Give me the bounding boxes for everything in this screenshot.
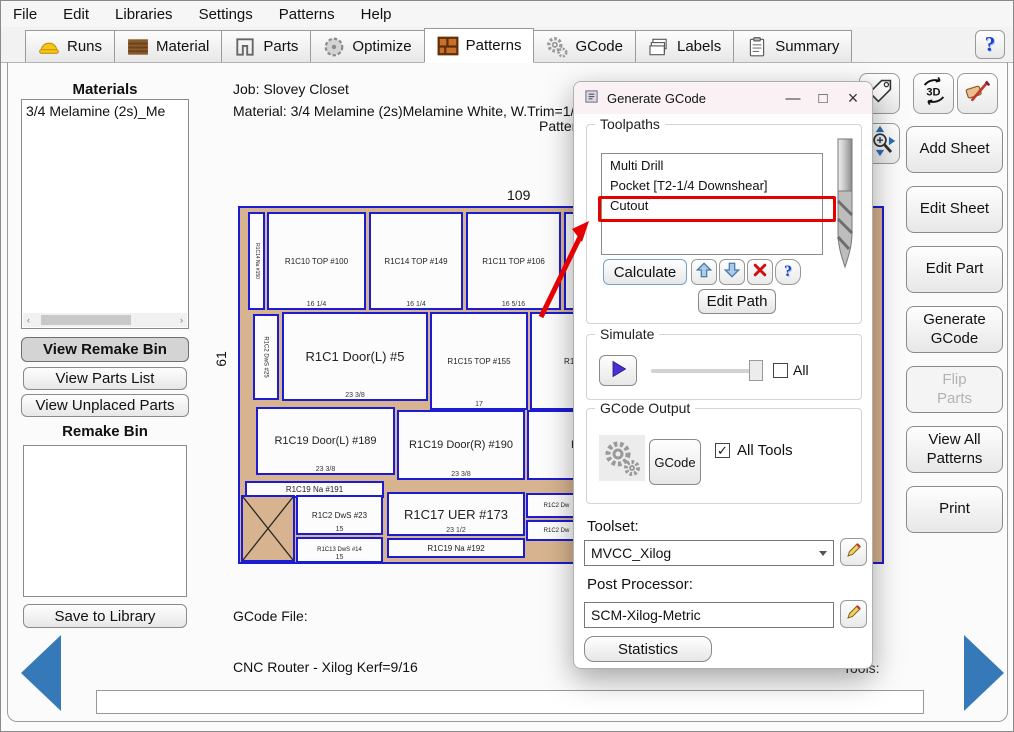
gcode-file-label: GCode File: (233, 608, 308, 624)
dialog-icon (584, 89, 599, 107)
gears-icon (546, 36, 568, 58)
job-line: Job: Slovey Closet (233, 81, 349, 97)
part-dimension: 16 1/4 (371, 301, 461, 308)
post-processor-label: Post Processor: (587, 576, 693, 593)
sawblade-icon (323, 36, 345, 58)
toolpaths-group: Toolpaths Multi DrillPocket [T2-1/4 Down… (586, 124, 862, 324)
labels-icon (648, 36, 670, 58)
red-x-icon (752, 262, 768, 283)
pattern-part[interactable]: R1C14 TOP #14916 1/4 (369, 212, 463, 310)
simulation-slider-handle[interactable] (749, 360, 763, 381)
material-line: Material: 3/4 Melamine (2s)Melamine Whit… (233, 103, 586, 119)
menu-item-edit[interactable]: Edit (63, 6, 89, 23)
pattern-part[interactable]: R1C19 Na #192 (387, 538, 525, 558)
toolpath-item[interactable]: Multi Drill (602, 156, 822, 176)
pattern-part[interactable]: R1C19 Door(L) #18923 3/8 (256, 407, 395, 475)
menu-item-file[interactable]: File (13, 6, 37, 23)
tab-label: Runs (67, 38, 102, 55)
pattern-part[interactable]: R1C14 Na #150 (248, 212, 265, 310)
dialog-titlebar[interactable]: Generate GCode — □ × (574, 82, 872, 114)
part-dimension: 16 1/4 (269, 301, 364, 308)
toolpaths-heading: Toolpaths (595, 116, 665, 132)
gcode-output-group: GCode Output GCode ✓ All Tools (586, 408, 862, 504)
tab-labels[interactable]: Labels (635, 30, 734, 62)
add-sheet-button[interactable]: Add Sheet (906, 126, 1003, 173)
sheet-width-dimension: 109 (507, 187, 530, 203)
all-tools-checkbox[interactable]: ✓ (715, 443, 730, 458)
pattern-part[interactable]: R1C2 DwS #25 (253, 314, 279, 400)
main-content: Materials 3/4 Melamine (2s)_Me ‹ › View … (1, 63, 1014, 732)
clipboard-icon (746, 36, 768, 58)
pencil-icon (845, 541, 863, 564)
move-down-button[interactable] (719, 259, 745, 285)
play-simulation-button[interactable] (599, 355, 637, 386)
materials-heading: Materials (21, 81, 189, 98)
part-label: R1C19 Door(L) #189 (274, 435, 376, 447)
generate-gcode-dialog: Generate GCode — □ × Toolpaths Multi Dri… (573, 81, 873, 669)
pattern-part[interactable]: R1C11 TOP #10616 5/16 (466, 212, 561, 310)
close-button[interactable]: × (838, 85, 868, 111)
edit-pattern-button[interactable] (957, 73, 998, 114)
tab-runs[interactable]: Runs (25, 30, 115, 62)
gears-icon (599, 435, 645, 481)
tab-label: Optimize (352, 38, 411, 55)
menu-item-patterns[interactable]: Patterns (279, 6, 335, 23)
tab-label: Summary (775, 38, 839, 55)
gcode-output-heading: GCode Output (595, 400, 695, 416)
simulate-heading: Simulate (595, 326, 659, 342)
part-label: R1C15 TOP #155 (447, 357, 510, 366)
gcode-button[interactable]: GCode (649, 439, 701, 485)
delete-toolpath-button[interactable] (747, 259, 773, 285)
simulation-slider-track[interactable] (651, 369, 763, 373)
materials-list[interactable]: 3/4 Melamine (2s)_Me ‹ › (21, 99, 189, 329)
app-window: FileEditLibrariesSettingsPatternsHelp Ru… (0, 0, 1014, 732)
tab-label: Labels (677, 38, 721, 55)
sheet-height-dimension: 61 (213, 351, 229, 367)
tab-label: Material (156, 38, 209, 55)
scroll-right-icon[interactable]: › (180, 315, 183, 325)
waste-area[interactable] (241, 495, 295, 562)
pattern-part[interactable]: R1C19 Door(R) #19023 3/8 (397, 410, 525, 480)
tab-patterns[interactable]: Patterns (424, 28, 535, 63)
part-label: R1C17 UER #173 (404, 507, 508, 522)
part-dimension: 15 (298, 554, 381, 561)
pattern-part[interactable]: R1C15 TOP #15517 (430, 312, 528, 410)
view-unplaced-parts-button[interactable]: View Unplaced Parts (21, 394, 189, 417)
svg-text:3D: 3D (926, 86, 940, 98)
previous-pattern-arrow[interactable] (21, 635, 61, 711)
maximize-button[interactable]: □ (808, 85, 838, 111)
tab-gcode[interactable]: GCode (533, 30, 636, 62)
print-button[interactable]: Print (906, 486, 1003, 533)
up-arrow-icon (695, 261, 713, 284)
part-dimension: 17 (432, 401, 526, 408)
menu-item-settings[interactable]: Settings (199, 6, 253, 23)
menu-item-libraries[interactable]: Libraries (115, 6, 173, 23)
next-pattern-arrow[interactable] (964, 635, 1004, 711)
tab-bar: RunsMaterialPartsOptimizePatternsGCodeLa… (1, 27, 1013, 63)
move-up-button[interactable] (691, 259, 717, 285)
part-label: R1C19 Na #192 (427, 544, 484, 553)
view-parts-list-button[interactable]: View Parts List (23, 367, 187, 390)
edit-path-button[interactable]: Edit Path (698, 289, 776, 314)
simulate-all-checkbox[interactable] (773, 363, 788, 378)
flip-parts-button: Flip Parts (906, 366, 1003, 413)
scroll-left-icon[interactable]: ‹ (27, 315, 30, 325)
part-dimension: 23 1/2 (389, 527, 523, 534)
parts-icon (234, 36, 256, 58)
toolpath-item[interactable]: Pocket [T2-1/4 Downshear] (602, 176, 822, 196)
part-dimension: 15 (298, 526, 381, 533)
hardhat-icon (38, 36, 60, 58)
minimize-button[interactable]: — (778, 85, 808, 111)
post-processor-value: SCM-Xilog-Metric (591, 607, 701, 623)
pencil-icon (845, 603, 863, 626)
toolpath-help-button[interactable]: ? (775, 259, 801, 285)
chevron-down-icon (819, 551, 827, 556)
pattern-part[interactable]: R1C17 UER #17323 1/2 (387, 492, 525, 536)
gcode-file-field[interactable] (96, 690, 924, 714)
edit-sheet-button[interactable]: Edit Sheet (906, 186, 1003, 233)
statistics-button[interactable]: Statistics (584, 636, 712, 662)
all-tools-label: All Tools (737, 442, 793, 459)
menu-item-help[interactable]: Help (361, 6, 392, 23)
part-label: R1C13 DwS #14 (317, 547, 362, 553)
edit-part-button[interactable]: Edit Part (906, 246, 1003, 293)
tab-label: Parts (263, 38, 298, 55)
pattern-part[interactable]: R1C13 DwS #1415 (296, 537, 383, 563)
remake-bin-list[interactable] (23, 445, 187, 597)
tab-optimize[interactable]: Optimize (310, 30, 424, 62)
part-dimension: 23 3/8 (258, 466, 393, 473)
tab-summary[interactable]: Summary (733, 30, 852, 62)
pattern-part[interactable]: R1C2 DwS #2315 (296, 495, 383, 535)
router-line: CNC Router - Xilog Kerf=9/16 (233, 659, 418, 675)
simulate-all-label: All (793, 362, 809, 378)
bricks-icon (437, 35, 459, 57)
part-label: R1C2 Dw (544, 503, 570, 509)
part-dimension: 23 3/8 (284, 392, 426, 399)
view-all-patterns-button[interactable]: View All Patterns (906, 426, 1003, 473)
tab-strip: RunsMaterialPartsOptimizePatternsGCodeLa… (25, 28, 851, 62)
part-label: R1C10 TOP #100 (285, 257, 348, 266)
3d-rotate-icon: 3D (917, 74, 951, 113)
part-label: R1C14 TOP #149 (384, 257, 447, 266)
menu-bar: FileEditLibrariesSettingsPatternsHelp (1, 1, 1013, 27)
view-remake-bin-button[interactable]: View Remake Bin (21, 337, 189, 362)
part-dimension: 16 5/16 (468, 301, 559, 308)
rotate-3d-button[interactable]: 3D (913, 73, 954, 114)
post-processor-field[interactable]: SCM-Xilog-Metric (584, 602, 834, 628)
part-label: R1C2 DwS #23 (312, 511, 367, 520)
help-button[interactable]: ? (975, 30, 1005, 59)
part-label: R1C2 DwS #25 (263, 336, 269, 377)
dialog-title: Generate GCode (607, 91, 778, 106)
tab-label: Patterns (466, 37, 522, 54)
help-icon: ? (985, 32, 996, 57)
part-label: R1C11 TOP #106 (482, 257, 545, 266)
part-label: R1C19 Na #191 (286, 485, 343, 494)
remake-bin-heading: Remake Bin (21, 423, 189, 440)
tab-label: GCode (575, 38, 623, 55)
scroll-thumb[interactable] (41, 315, 131, 325)
eraser-pencil-icon (962, 75, 994, 112)
material-list-item[interactable]: 3/4 Melamine (2s)_Me (22, 100, 188, 122)
toolset-dropdown[interactable]: MVCC_Xilog (584, 540, 834, 566)
part-label: R1C2 Dw (544, 528, 570, 534)
toolset-value: MVCC_Xilog (591, 545, 671, 561)
edit-post-processor-button[interactable] (840, 600, 867, 628)
pattern-part[interactable]: R1C1 Door(L) #523 3/8 (282, 312, 428, 401)
part-label: R1C19 Door(R) #190 (409, 439, 513, 451)
tab-material[interactable]: Material (114, 30, 222, 62)
simulate-group: Simulate All (586, 334, 862, 400)
pattern-part[interactable]: R1C10 TOP #10016 1/4 (267, 212, 366, 310)
part-label: R1C14 Na #150 (254, 243, 260, 279)
tab-parts[interactable]: Parts (221, 30, 311, 62)
part-label: R1C1 Door(L) #5 (306, 349, 405, 364)
calculate-button[interactable]: Calculate (603, 259, 687, 285)
generate-gcode-button[interactable]: Generate GCode (906, 306, 1003, 353)
part-dimension: 23 3/8 (399, 471, 523, 478)
edit-toolset-button[interactable] (840, 538, 867, 566)
cutout-highlight-annotation (598, 196, 836, 222)
check-icon: ✓ (717, 443, 728, 459)
toolpath-help-icon: ? (784, 263, 792, 281)
toolset-label: Toolset: (587, 518, 639, 535)
materials-list-hscrollbar[interactable]: ‹ › (23, 313, 187, 327)
play-icon (608, 359, 628, 383)
down-arrow-icon (723, 261, 741, 284)
wood-icon (127, 36, 149, 58)
save-to-library-button[interactable]: Save to Library (23, 604, 187, 628)
